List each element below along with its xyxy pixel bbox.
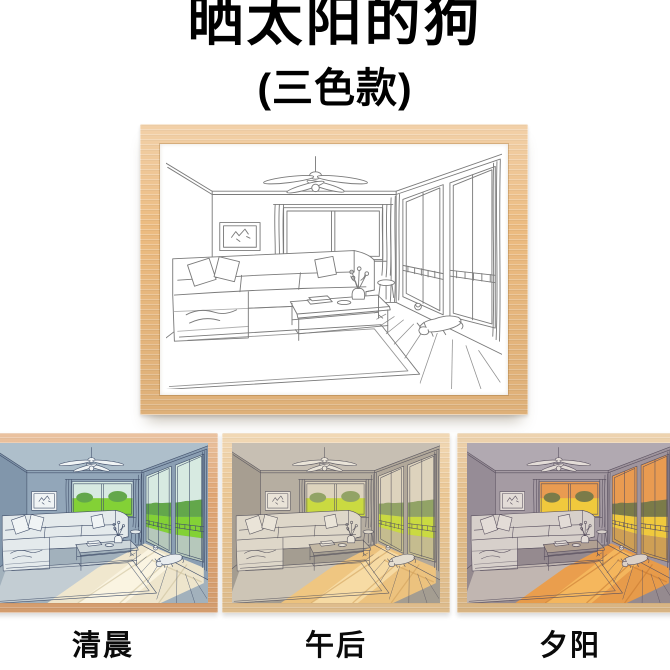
main-frame [140,124,528,415]
variant-label-morning: 清晨 [0,622,218,664]
variant-scene-morning [0,443,208,603]
variant-frame-morning [0,433,218,613]
variant-label-sunset: 夕阳 [457,622,670,664]
product-image: 晒太阳的狗 (三色款) 清晨 午后 夕阳 [0,0,670,670]
variant-scene-sunset [467,443,670,603]
variant-scene-afternoon [232,443,440,603]
main-frame-mat [160,144,508,395]
variant-frame-sunset [457,433,670,613]
product-title: 晒太阳的狗 [0,0,670,51]
variant-frame-afternoon [222,433,450,613]
variant-morning: 清晨 [0,433,218,664]
variant-sunset: 夕阳 [457,433,670,664]
variant-afternoon: 午后 [222,433,450,664]
variant-label-afternoon: 午后 [222,622,450,664]
product-subtitle: (三色款) [0,54,670,114]
line-art-scene [166,150,502,389]
